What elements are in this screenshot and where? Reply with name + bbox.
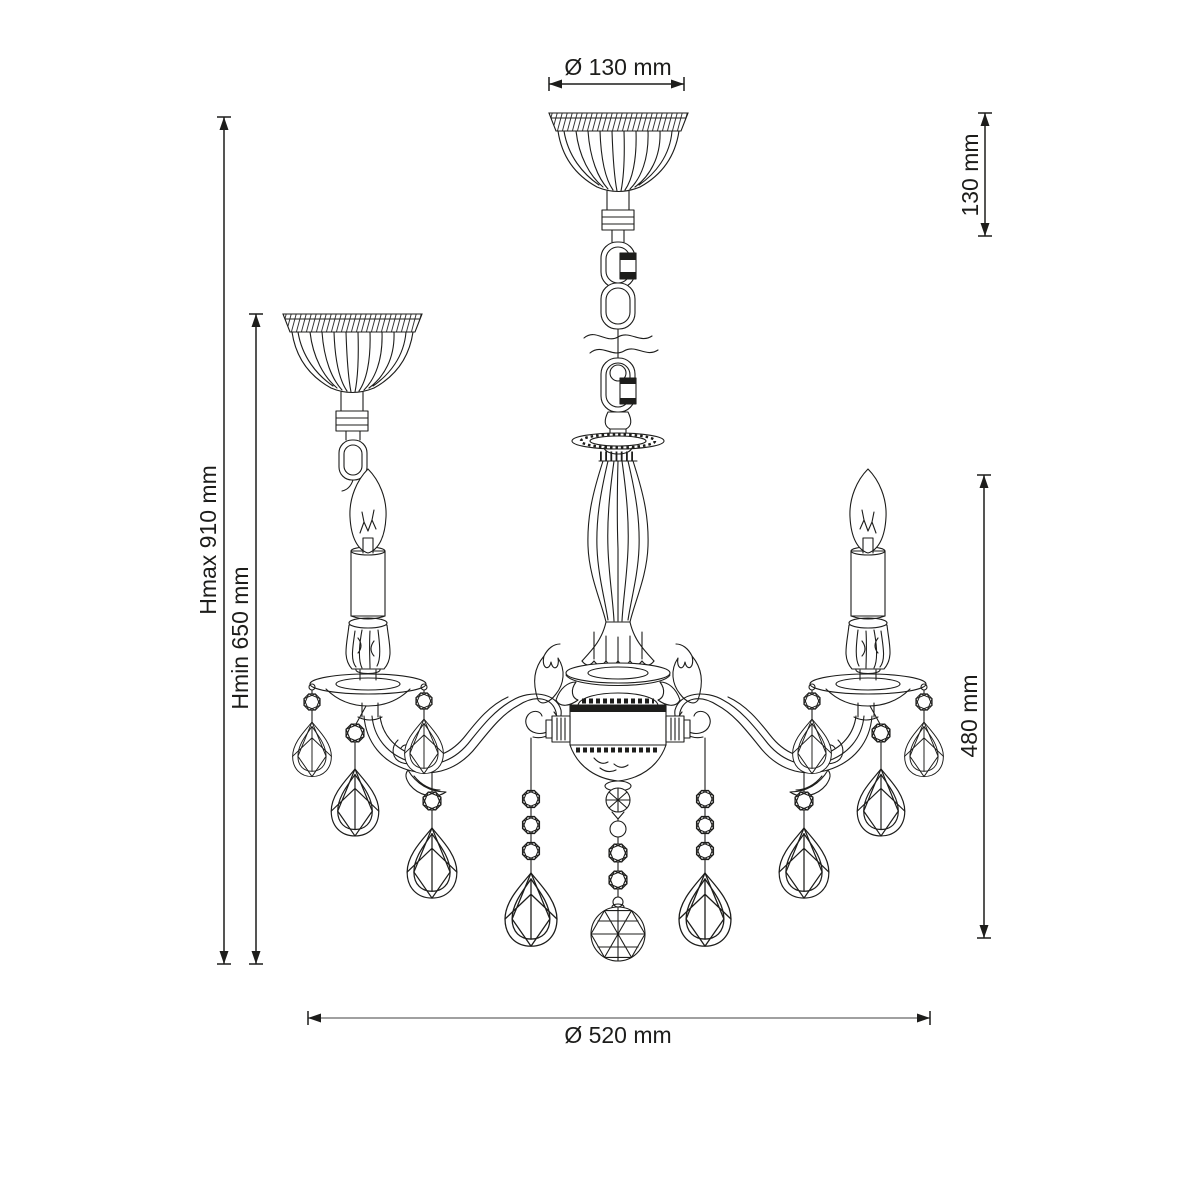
dim-max-height-label: Hmax 910 mm [195,465,221,615]
dim-min-height-label: Hmin 650 mm [227,566,253,709]
dim-canopy-diameter-label: Ø 130 mm [564,54,671,80]
collar-plate [572,433,664,454]
chandelier-dimension-drawing: Ø 130 mm 130 mm Hmax 910 mm Hmin 650 mm … [0,0,1200,1200]
dim-fixture-diameter: Ø 520 mm [308,1011,930,1048]
chain-break-squiggle [584,335,658,353]
dim-fixture-height-label: 480 mm [956,674,982,757]
dim-fixture-height: 480 mm [956,475,991,938]
column-capital [566,622,670,686]
drawing-canvas: Ø 130 mm 130 mm Hmax 910 mm Hmin 650 mm … [0,0,1200,1200]
spare-ceiling-canopy [283,314,422,491]
right-arm-assembly [658,469,943,946]
left-arm-assembly [293,469,578,946]
suspension-chain [584,230,658,440]
dim-fixture-diameter-label: Ø 520 mm [564,1022,671,1048]
center-crystal-strand [591,819,645,961]
dim-min-height: Hmin 650 mm [227,314,263,964]
center-column [588,456,648,622]
dim-canopy-diameter: Ø 130 mm [549,54,684,91]
chandelier-body [546,693,690,819]
crystal-ball [591,904,645,961]
dim-max-height: Hmax 910 mm [195,117,231,964]
ceiling-canopy [549,113,688,230]
dim-canopy-height-label: 130 mm [957,133,983,216]
dim-canopy-height: 130 mm [957,113,992,236]
